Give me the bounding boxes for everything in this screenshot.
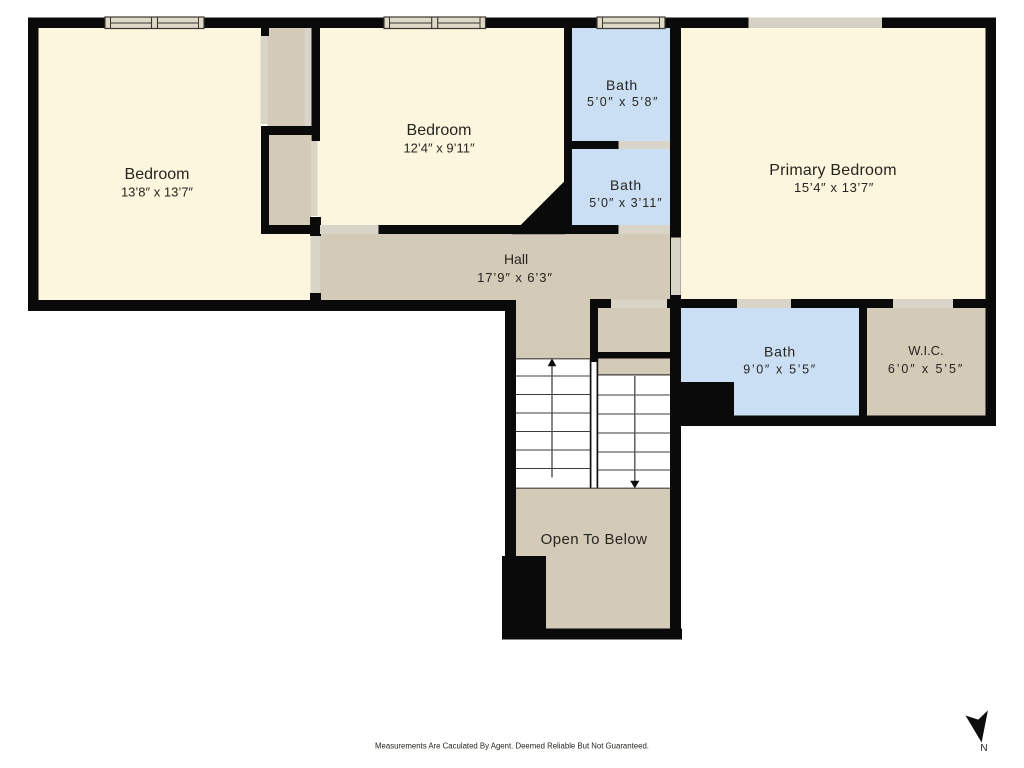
svg-text:13’8″ x 13’7″: 13’8″ x 13’7″	[121, 185, 193, 200]
svg-text:Measurements Are Caculated By: Measurements Are Caculated By Agent. Dee…	[375, 742, 649, 751]
svg-text:12’4″ x 9’11″: 12’4″ x 9’11″	[403, 141, 475, 156]
svg-text:17’9″ x 6’3″: 17’9″ x 6’3″	[477, 270, 553, 285]
svg-text:5’0″ x 5’8″: 5’0″ x 5’8″	[587, 95, 659, 109]
svg-text:Bath: Bath	[610, 177, 642, 193]
svg-text:Open To Below: Open To Below	[541, 531, 648, 548]
svg-text:6’0″ x 5’5″: 6’0″ x 5’5″	[888, 362, 964, 376]
svg-text:Primary Bedroom: Primary Bedroom	[769, 162, 896, 179]
svg-text:Bedroom: Bedroom	[125, 166, 190, 183]
svg-text:15’4″ x 13’7″: 15’4″ x 13’7″	[794, 180, 874, 195]
svg-text:Bath: Bath	[606, 77, 638, 93]
svg-text:Bath: Bath	[764, 344, 796, 360]
svg-text:Hall: Hall	[504, 251, 528, 267]
svg-text:Bedroom: Bedroom	[407, 122, 472, 139]
svg-text:9’0″ x 5’5″: 9’0″ x 5’5″	[743, 363, 817, 377]
svg-text:W.I.C.: W.I.C.	[908, 343, 943, 358]
svg-text:N: N	[980, 743, 987, 754]
svg-text:5’0″ x 3’11″: 5’0″ x 3’11″	[589, 196, 662, 210]
